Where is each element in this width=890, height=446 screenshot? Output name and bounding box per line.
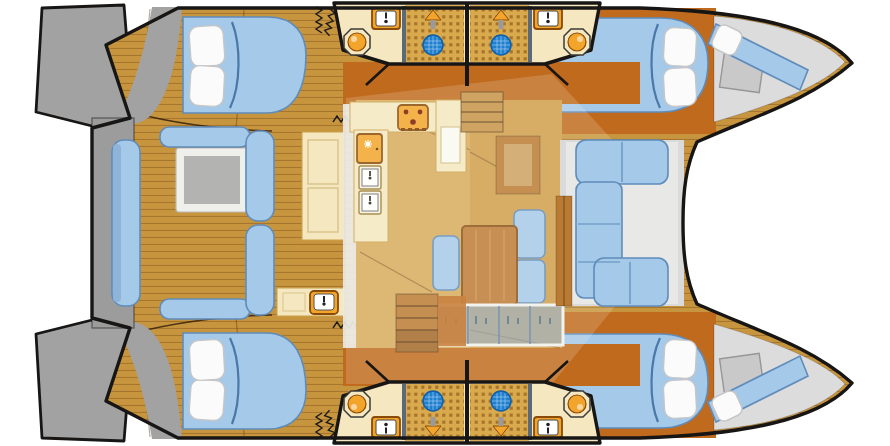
cockpit-wet-bar [277, 288, 345, 316]
cockpit-cabinet [302, 132, 344, 240]
catamaran-floor-plan [0, 0, 890, 446]
foredeck-lounge [556, 140, 684, 306]
cockpit-table [176, 148, 248, 212]
foredeck-steps [556, 196, 572, 306]
wet-bar-sink [310, 291, 338, 314]
transom-bench [112, 140, 140, 306]
